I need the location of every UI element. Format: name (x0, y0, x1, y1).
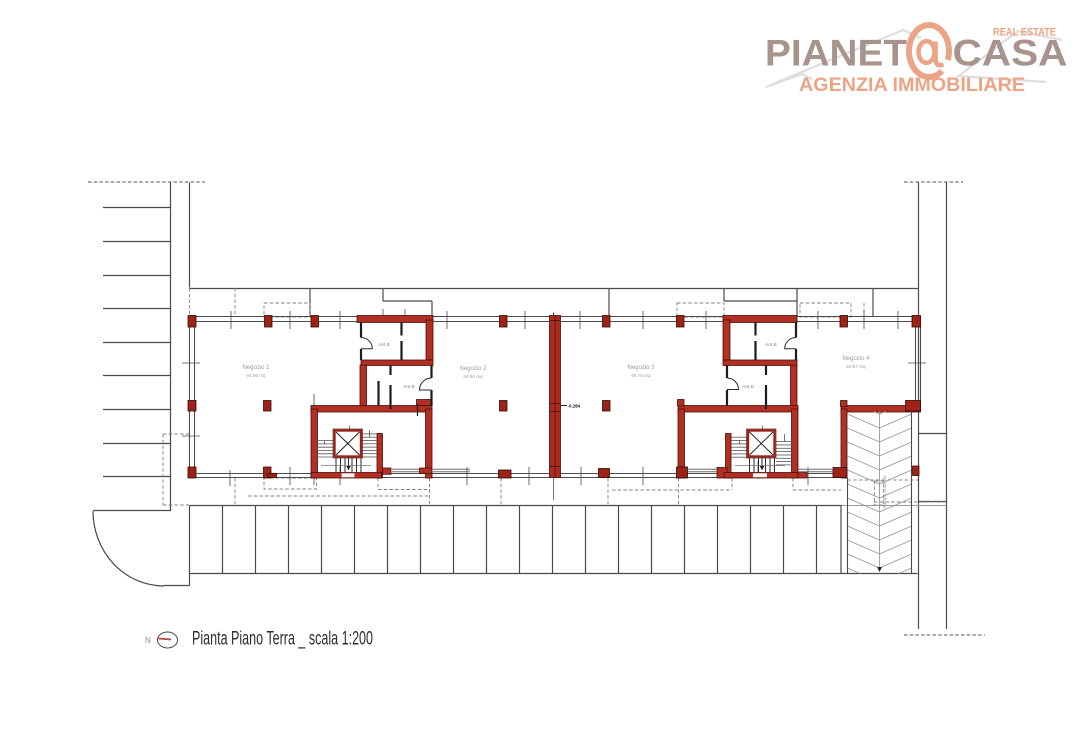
svg-text:Ant.B: Ant.B (378, 342, 390, 348)
svg-text:Rampa scoperta: Rampa scoperta (882, 475, 887, 509)
svg-text:Ant.B: Ant.B (742, 384, 754, 390)
svg-text:AGENZIA IMMOBILIARE: AGENZIA IMMOBILIARE (799, 74, 1025, 96)
svg-text:54.80 mq: 54.80 mq (463, 374, 483, 379)
svg-text:N: N (145, 636, 151, 645)
svg-text:Negozio 4: Negozio 4 (842, 356, 870, 362)
svg-text:PIANET: PIANET (765, 33, 907, 74)
svg-text:CASA: CASA (953, 33, 1068, 74)
svg-text:Negozio 2: Negozio 2 (459, 366, 487, 372)
svg-text:REAL ESTATE: REAL ESTATE (993, 27, 1056, 39)
svg-text:94.06 mq: 94.06 mq (246, 373, 266, 378)
svg-text:65.75 mq: 65.75 mq (631, 373, 651, 378)
svg-text:Ant.B: Ant.B (765, 342, 777, 348)
svg-text:-0.284: -0.284 (568, 404, 581, 409)
svg-text:53.57 mq: 53.57 mq (846, 364, 866, 369)
svg-text:Ant.B: Ant.B (403, 384, 415, 390)
svg-text:Pianta Piano Terra _ scala 1:2: Pianta Piano Terra _ scala 1:200 (192, 629, 373, 650)
svg-text:Negozio 1: Negozio 1 (242, 365, 270, 371)
svg-text:Negozio 3: Negozio 3 (627, 365, 655, 371)
